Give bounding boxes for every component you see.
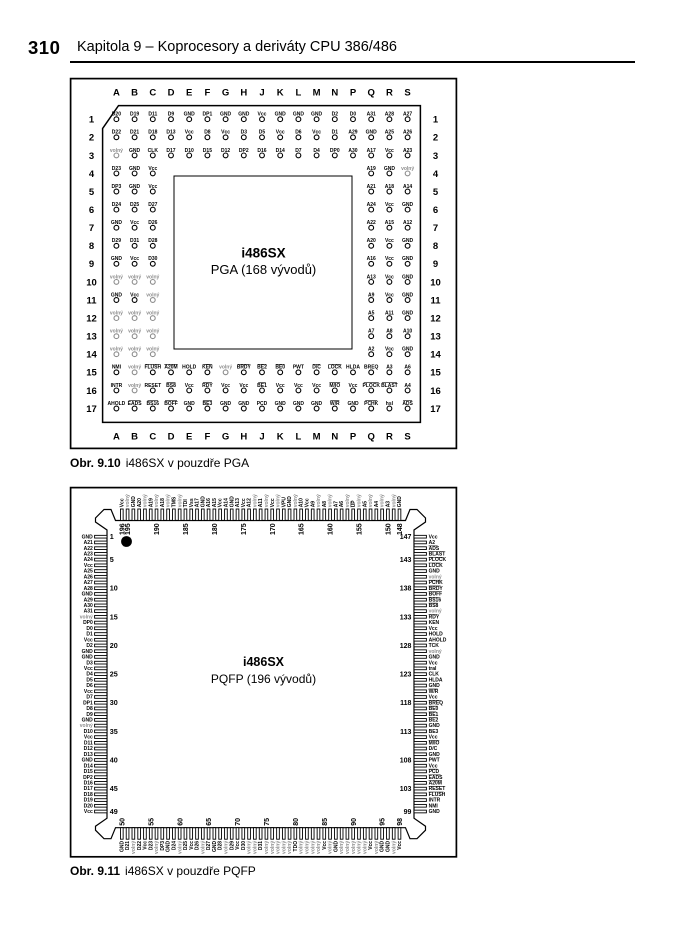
svg-text:4: 4 <box>433 169 439 180</box>
svg-text:3: 3 <box>433 151 438 162</box>
svg-text:A15: A15 <box>385 220 394 226</box>
svg-text:H: H <box>240 88 247 99</box>
svg-text:A27: A27 <box>403 112 412 118</box>
svg-text:Vcc: Vcc <box>276 130 285 136</box>
svg-text:GND: GND <box>184 401 196 407</box>
svg-text:volný: volný <box>128 383 141 389</box>
svg-text:Vcc: Vcc <box>221 130 230 136</box>
svg-text:Vcc: Vcc <box>84 809 93 815</box>
svg-text:7: 7 <box>433 223 438 234</box>
svg-text:GND: GND <box>220 401 232 407</box>
svg-text:N: N <box>331 432 338 443</box>
svg-text:A31: A31 <box>367 112 376 118</box>
svg-text:15: 15 <box>430 368 441 379</box>
svg-text:A13: A13 <box>367 274 376 280</box>
svg-text:1: 1 <box>110 532 114 541</box>
svg-text:10: 10 <box>430 277 441 288</box>
svg-text:volný: volný <box>110 311 123 317</box>
svg-text:8: 8 <box>89 241 94 252</box>
svg-text:Vcc: Vcc <box>312 130 321 136</box>
svg-text:55: 55 <box>148 818 155 826</box>
svg-text:15: 15 <box>110 612 118 621</box>
svg-text:BE3: BE3 <box>203 401 213 407</box>
svg-text:D29: D29 <box>112 238 121 244</box>
svg-text:DP3: DP3 <box>112 184 122 190</box>
svg-text:D31: D31 <box>130 238 139 244</box>
svg-text:D2: D2 <box>332 112 339 118</box>
svg-text:GND: GND <box>293 112 305 118</box>
svg-text:GND: GND <box>111 220 123 226</box>
svg-text:BOFF: BOFF <box>164 401 178 407</box>
svg-text:J: J <box>259 88 264 99</box>
svg-text:BS8: BS8 <box>166 383 176 389</box>
svg-text:P: P <box>350 88 357 99</box>
svg-text:volný: volný <box>128 365 141 371</box>
svg-text:D14: D14 <box>276 148 285 154</box>
svg-text:S: S <box>404 432 410 443</box>
svg-text:5: 5 <box>433 187 439 198</box>
svg-text:D18: D18 <box>148 130 157 136</box>
svg-text:65: 65 <box>206 818 213 826</box>
svg-text:148: 148 <box>397 523 404 535</box>
svg-text:15: 15 <box>86 368 97 379</box>
svg-text:E: E <box>186 432 192 443</box>
svg-text:11: 11 <box>430 295 441 306</box>
svg-text:D13: D13 <box>166 130 175 136</box>
svg-text:PLOCK: PLOCK <box>362 383 380 389</box>
svg-text:Vcc: Vcc <box>276 383 285 389</box>
svg-text:A30: A30 <box>348 148 357 154</box>
svg-text:GND: GND <box>129 148 141 154</box>
svg-text:DP1: DP1 <box>203 112 213 118</box>
svg-text:85: 85 <box>322 818 329 826</box>
svg-text:45: 45 <box>110 784 118 793</box>
svg-text:75: 75 <box>264 818 271 826</box>
svg-text:M: M <box>313 88 321 99</box>
svg-text:12: 12 <box>86 314 97 325</box>
svg-text:D17: D17 <box>166 148 175 154</box>
svg-text:13: 13 <box>430 332 441 343</box>
svg-text:volný: volný <box>110 274 123 280</box>
svg-text:G: G <box>222 88 229 99</box>
svg-text:A: A <box>113 88 120 99</box>
svg-text:Vcc: Vcc <box>385 202 394 208</box>
svg-text:Vcc: Vcc <box>221 383 230 389</box>
svg-text:Vcc: Vcc <box>148 184 157 190</box>
svg-text:volný: volný <box>110 148 123 154</box>
svg-text:Vcc: Vcc <box>385 274 394 280</box>
svg-text:GND: GND <box>347 401 359 407</box>
svg-text:volný: volný <box>146 274 159 280</box>
svg-text:8: 8 <box>433 241 438 252</box>
svg-text:GND: GND <box>402 202 414 208</box>
svg-text:PCHK: PCHK <box>364 401 379 407</box>
svg-text:D: D <box>168 88 175 99</box>
svg-text:volný: volný <box>146 292 159 298</box>
svg-text:196: 196 <box>119 523 126 535</box>
svg-text:R: R <box>386 432 393 443</box>
svg-text:GND: GND <box>111 256 123 262</box>
svg-text:A11: A11 <box>385 311 394 317</box>
svg-text:KEN: KEN <box>202 365 213 371</box>
svg-text:2: 2 <box>89 133 94 144</box>
svg-text:hsl: hsl <box>386 401 394 407</box>
svg-text:D3: D3 <box>241 130 248 136</box>
svg-text:180: 180 <box>212 523 219 535</box>
svg-text:D15: D15 <box>203 148 212 154</box>
svg-text:INTR: INTR <box>111 383 123 389</box>
svg-text:HLDA: HLDA <box>346 365 360 371</box>
svg-text:95: 95 <box>380 818 387 826</box>
svg-text:A14: A14 <box>403 184 412 190</box>
svg-text:D27: D27 <box>148 202 157 208</box>
svg-text:J: J <box>259 432 264 443</box>
svg-text:N: N <box>331 88 338 99</box>
svg-text:K: K <box>277 432 284 443</box>
svg-text:D22: D22 <box>112 130 121 136</box>
svg-text:D11: D11 <box>148 112 157 118</box>
svg-text:A16: A16 <box>367 256 376 262</box>
svg-text:BREQ: BREQ <box>364 365 379 371</box>
svg-text:GND: GND <box>275 112 287 118</box>
svg-text:D1: D1 <box>332 130 339 136</box>
svg-text:GND: GND <box>311 401 323 407</box>
svg-text:14: 14 <box>430 350 441 361</box>
svg-text:A25: A25 <box>385 130 394 136</box>
svg-text:A12: A12 <box>403 220 412 226</box>
svg-text:D5: D5 <box>259 130 266 136</box>
svg-text:133: 133 <box>400 614 412 621</box>
svg-text:143: 143 <box>400 557 412 564</box>
svg-text:11: 11 <box>86 295 97 306</box>
svg-text:C: C <box>149 88 156 99</box>
svg-text:GND: GND <box>238 112 250 118</box>
svg-text:P: P <box>350 432 357 443</box>
svg-text:16: 16 <box>86 386 97 397</box>
svg-text:5: 5 <box>89 187 95 198</box>
svg-text:volný: volný <box>128 329 141 335</box>
svg-text:NMI: NMI <box>112 365 122 371</box>
svg-text:D25: D25 <box>130 202 139 208</box>
svg-text:GND: GND <box>220 112 232 118</box>
svg-text:Vcc: Vcc <box>385 292 394 298</box>
svg-text:70: 70 <box>235 818 242 826</box>
svg-text:GND: GND <box>293 401 305 407</box>
svg-text:D9: D9 <box>168 112 175 118</box>
svg-text:Vcc: Vcc <box>294 383 303 389</box>
svg-text:D8: D8 <box>204 130 211 136</box>
svg-text:6: 6 <box>433 205 438 216</box>
svg-text:Vcc: Vcc <box>130 220 139 226</box>
svg-text:9: 9 <box>89 259 94 270</box>
svg-text:A5: A5 <box>368 311 375 317</box>
svg-text:2: 2 <box>433 133 438 144</box>
svg-text:165: 165 <box>299 523 306 535</box>
svg-text:10: 10 <box>110 584 118 593</box>
svg-text:A3: A3 <box>386 365 393 371</box>
svg-text:HOLD: HOLD <box>182 365 197 371</box>
svg-text:GND: GND <box>184 112 196 118</box>
svg-text:D10: D10 <box>185 148 194 154</box>
svg-text:A4: A4 <box>404 383 411 389</box>
svg-text:40: 40 <box>110 755 118 764</box>
svg-text:D0: D0 <box>350 112 357 118</box>
svg-text:FLUSH: FLUSH <box>144 365 161 371</box>
svg-text:20: 20 <box>110 641 118 650</box>
svg-text:A26: A26 <box>403 130 412 136</box>
svg-text:A6: A6 <box>404 365 411 371</box>
svg-text:D23: D23 <box>112 166 121 172</box>
svg-text:12: 12 <box>430 314 441 325</box>
svg-text:A22: A22 <box>367 220 376 226</box>
svg-text:A20M: A20M <box>164 365 177 371</box>
svg-text:Vcc: Vcc <box>385 347 394 353</box>
svg-text:L: L <box>295 432 301 443</box>
svg-text:GND: GND <box>402 256 414 262</box>
svg-text:103: 103 <box>400 786 412 793</box>
svg-text:A18: A18 <box>385 184 394 190</box>
svg-text:138: 138 <box>400 586 412 593</box>
svg-text:D19: D19 <box>130 112 139 118</box>
svg-text:volný: volný <box>110 329 123 335</box>
svg-text:Vcc: Vcc <box>397 841 403 850</box>
svg-text:108: 108 <box>400 757 412 764</box>
svg-text:D28: D28 <box>148 238 157 244</box>
svg-text:1: 1 <box>433 115 439 126</box>
svg-text:volný: volný <box>219 365 232 371</box>
svg-text:5: 5 <box>110 555 114 564</box>
svg-text:volný: volný <box>128 311 141 317</box>
svg-text:D30: D30 <box>148 256 157 262</box>
svg-text:99: 99 <box>404 809 412 816</box>
svg-text:GND: GND <box>366 130 378 136</box>
svg-text:16: 16 <box>430 386 441 397</box>
svg-text:A19: A19 <box>367 166 376 172</box>
svg-text:25: 25 <box>110 670 118 679</box>
svg-text:170: 170 <box>270 523 277 535</box>
svg-text:PCD: PCD <box>257 401 268 407</box>
svg-text:ADS: ADS <box>402 401 413 407</box>
svg-text:A23: A23 <box>403 148 412 154</box>
svg-text:GND: GND <box>429 809 441 815</box>
svg-text:60: 60 <box>177 818 184 826</box>
svg-text:A24: A24 <box>367 202 376 208</box>
svg-text:BLAST: BLAST <box>381 383 398 389</box>
svg-text:M: M <box>313 432 321 443</box>
svg-text:EADS: EADS <box>128 401 143 407</box>
svg-text:118: 118 <box>400 700 411 707</box>
svg-text:BE2: BE2 <box>257 365 267 371</box>
svg-text:Vcc: Vcc <box>148 166 157 172</box>
svg-text:A20: A20 <box>367 238 376 244</box>
svg-text:A7: A7 <box>368 329 375 335</box>
svg-text:D24: D24 <box>112 202 121 208</box>
svg-text:volný: volný <box>110 347 123 353</box>
svg-text:155: 155 <box>357 523 364 535</box>
svg-text:A: A <box>113 432 120 443</box>
svg-text:113: 113 <box>400 729 411 736</box>
svg-text:80: 80 <box>293 818 300 826</box>
svg-text:A10: A10 <box>403 329 412 335</box>
svg-text:RESET: RESET <box>144 383 161 389</box>
svg-text:D26: D26 <box>148 220 157 226</box>
svg-text:Vcc: Vcc <box>258 112 267 118</box>
svg-text:14: 14 <box>86 350 97 361</box>
svg-text:Vcc: Vcc <box>185 383 194 389</box>
svg-text:Vcc: Vcc <box>239 383 248 389</box>
svg-text:volný: volný <box>146 347 159 353</box>
svg-text:7: 7 <box>89 223 94 234</box>
svg-text:BS16: BS16 <box>147 401 160 407</box>
svg-text:B: B <box>131 88 138 99</box>
svg-text:volný: volný <box>146 311 159 317</box>
svg-text:BRDY: BRDY <box>237 365 252 371</box>
svg-text:i486SX: i486SX <box>243 655 285 669</box>
svg-text:B: B <box>131 432 138 443</box>
svg-text:GND: GND <box>311 112 323 118</box>
svg-text:AHOLD: AHOLD <box>108 401 126 407</box>
svg-text:1: 1 <box>89 115 95 126</box>
svg-text:GND: GND <box>402 292 414 298</box>
svg-text:F: F <box>204 432 210 443</box>
svg-text:49: 49 <box>110 807 118 816</box>
svg-text:Q: Q <box>368 88 375 99</box>
svg-text:GND: GND <box>129 184 141 190</box>
svg-text:GND: GND <box>402 238 414 244</box>
svg-text:PGA (168 vývodů): PGA (168 vývodů) <box>211 262 317 277</box>
svg-text:D20: D20 <box>112 112 121 118</box>
svg-text:A9: A9 <box>368 292 375 298</box>
svg-text:Vcc: Vcc <box>385 148 394 154</box>
svg-text:17: 17 <box>430 404 441 415</box>
svg-text:98: 98 <box>397 818 404 826</box>
svg-text:13: 13 <box>86 332 97 343</box>
svg-text:PQFP (196 vývodů): PQFP (196 vývodů) <box>211 672 316 686</box>
svg-text:D21: D21 <box>130 130 139 136</box>
svg-text:185: 185 <box>183 523 190 535</box>
svg-text:CLK: CLK <box>148 148 159 154</box>
svg-text:D4: D4 <box>313 148 320 154</box>
svg-text:Vcc: Vcc <box>312 383 321 389</box>
svg-text:A28: A28 <box>385 112 394 118</box>
svg-text:D6: D6 <box>295 130 302 136</box>
svg-text:D12: D12 <box>221 148 230 154</box>
svg-text:35: 35 <box>110 727 118 736</box>
svg-text:F: F <box>204 88 210 99</box>
svg-text:Vcc: Vcc <box>385 238 394 244</box>
svg-text:i486SX: i486SX <box>241 246 285 261</box>
svg-text:volný: volný <box>401 166 414 172</box>
svg-text:Q: Q <box>368 432 375 443</box>
svg-text:volný: volný <box>146 329 159 335</box>
svg-text:W/R: W/R <box>330 401 340 407</box>
svg-text:A8: A8 <box>386 329 393 335</box>
svg-text:A17: A17 <box>367 148 376 154</box>
svg-text:C: C <box>149 432 156 443</box>
svg-text:DP0: DP0 <box>330 148 340 154</box>
svg-text:volný: volný <box>128 274 141 280</box>
svg-text:190: 190 <box>154 523 161 535</box>
svg-text:GND: GND <box>402 274 414 280</box>
svg-text:160: 160 <box>328 523 335 535</box>
svg-text:H: H <box>240 432 247 443</box>
svg-text:D16: D16 <box>257 148 266 154</box>
svg-text:50: 50 <box>119 818 126 826</box>
svg-text:GND: GND <box>402 347 414 353</box>
svg-text:GND: GND <box>275 401 287 407</box>
svg-text:R: R <box>386 88 393 99</box>
svg-text:A2: A2 <box>368 347 375 353</box>
svg-text:GND: GND <box>397 496 403 508</box>
svg-text:9: 9 <box>433 259 438 270</box>
svg-text:E: E <box>186 88 192 99</box>
svg-text:GND: GND <box>384 166 396 172</box>
svg-text:Vcc: Vcc <box>385 256 394 262</box>
svg-text:BE0: BE0 <box>275 365 285 371</box>
svg-text:LOCK: LOCK <box>328 365 343 371</box>
svg-text:S: S <box>404 88 410 99</box>
svg-text:Vcc: Vcc <box>349 383 358 389</box>
svg-text:GND: GND <box>111 292 123 298</box>
svg-text:175: 175 <box>241 523 248 535</box>
svg-text:4: 4 <box>89 169 95 180</box>
svg-text:A21: A21 <box>367 184 376 190</box>
svg-text:volný: volný <box>128 347 141 353</box>
svg-text:128: 128 <box>400 643 412 650</box>
svg-text:10: 10 <box>86 277 97 288</box>
svg-text:G: G <box>222 432 229 443</box>
svg-text:GND: GND <box>402 311 414 317</box>
svg-text:3: 3 <box>89 151 94 162</box>
svg-text:150: 150 <box>386 523 393 535</box>
svg-text:PWT: PWT <box>293 365 304 371</box>
svg-text:Vcc: Vcc <box>130 256 139 262</box>
svg-text:D/C: D/C <box>312 365 321 371</box>
svg-text:K: K <box>277 88 284 99</box>
svg-text:M/IO: M/IO <box>329 383 340 389</box>
svg-text:30: 30 <box>110 698 118 707</box>
svg-text:RDY: RDY <box>202 383 213 389</box>
svg-text:90: 90 <box>351 818 358 826</box>
svg-text:DP2: DP2 <box>239 148 249 154</box>
svg-text:123: 123 <box>400 672 412 679</box>
svg-text:17: 17 <box>86 404 97 415</box>
svg-text:D: D <box>168 432 175 443</box>
svg-text:Vcc: Vcc <box>130 292 139 298</box>
svg-text:A29: A29 <box>348 130 357 136</box>
svg-text:GND: GND <box>129 166 141 172</box>
svg-text:BE1: BE1 <box>257 383 267 389</box>
svg-text:Vcc: Vcc <box>185 130 194 136</box>
svg-text:L: L <box>295 88 301 99</box>
svg-text:6: 6 <box>89 205 94 216</box>
svg-text:D7: D7 <box>295 148 302 154</box>
svg-text:GND: GND <box>238 401 250 407</box>
